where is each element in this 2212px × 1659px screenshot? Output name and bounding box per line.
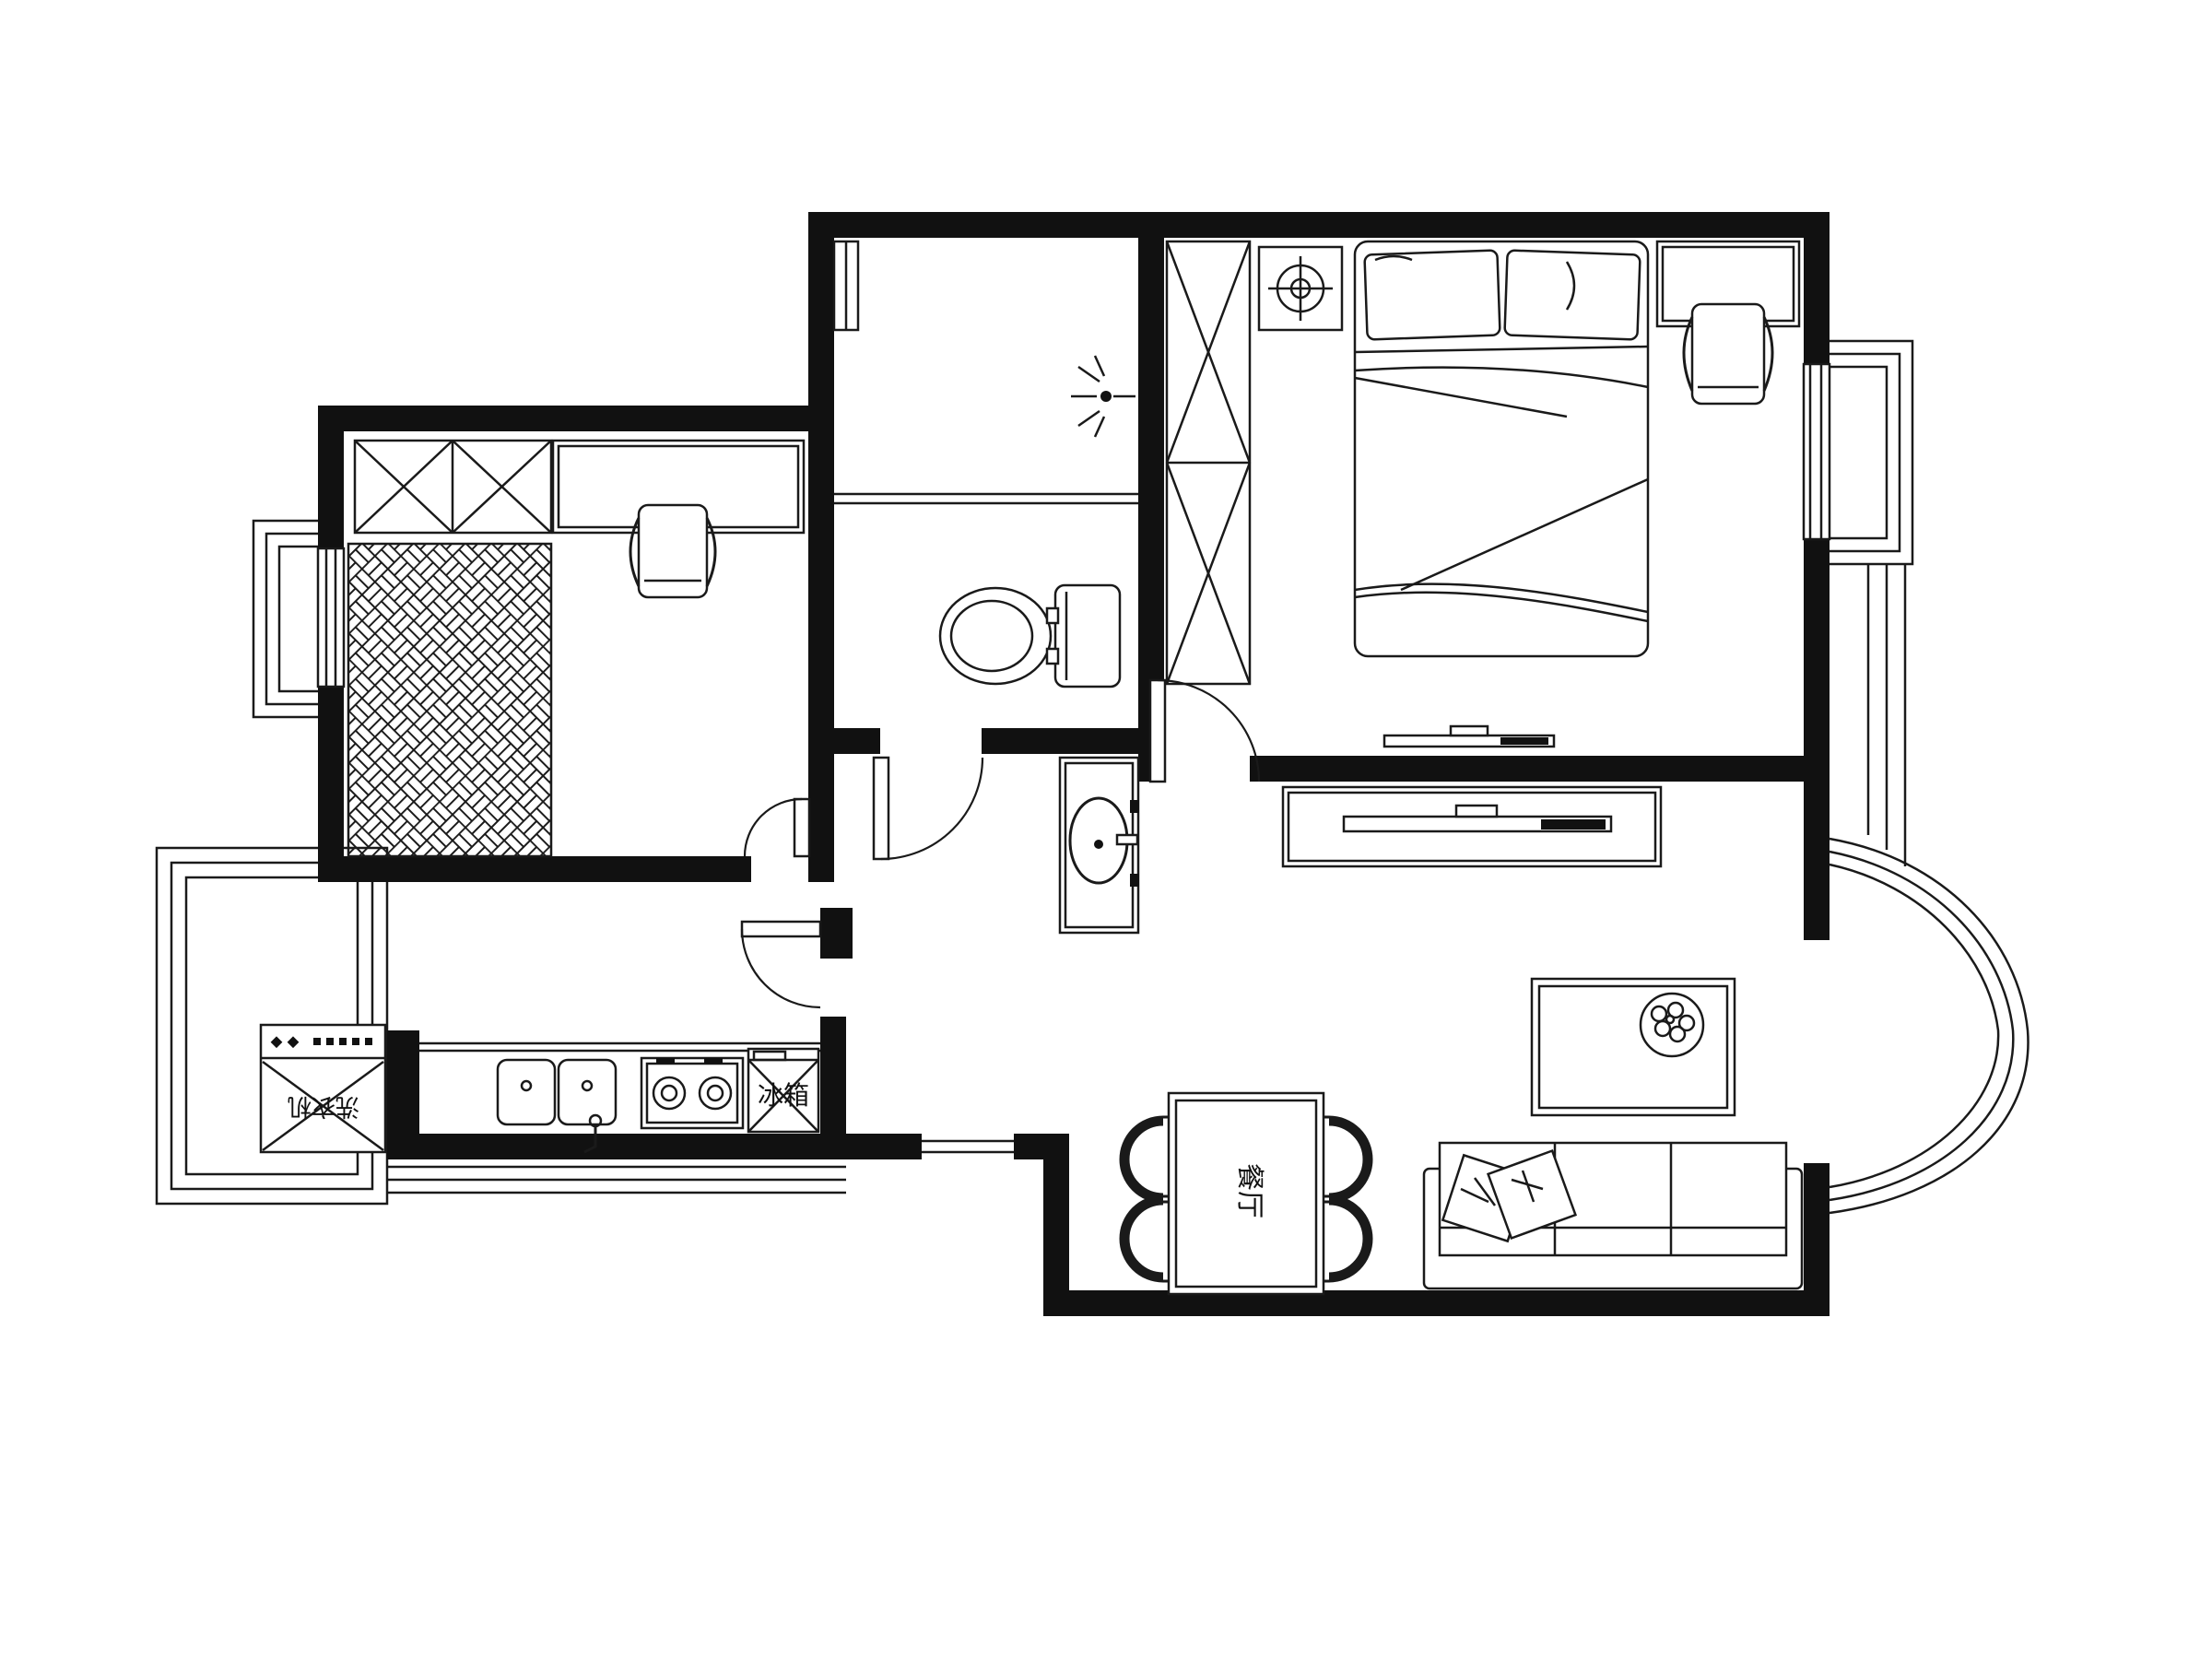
dining-room-label: 餐厅 bbox=[1234, 1163, 1265, 1218]
tatami-mat bbox=[348, 544, 551, 856]
floor-plan-canvas: 冰箱 洗衣机 bbox=[0, 0, 2212, 1659]
second-bedroom bbox=[348, 441, 809, 856]
ceiling-light-icon bbox=[1259, 247, 1342, 330]
bay-window-master-bedroom bbox=[1830, 341, 1912, 866]
dresser-stool-icon bbox=[1684, 304, 1772, 404]
wardrobe-icon bbox=[355, 441, 551, 533]
ceiling-lamp-icon bbox=[1071, 356, 1135, 437]
dining-area: 餐厅 bbox=[1124, 1093, 1368, 1294]
duct-window-bathroom bbox=[834, 241, 858, 330]
double-bed-icon bbox=[1355, 241, 1648, 656]
washing-machine-icon: 洗衣机 bbox=[261, 1025, 385, 1152]
kitchen: 冰箱 bbox=[419, 922, 820, 1152]
shower-divider bbox=[834, 494, 1138, 503]
bathroom-door bbox=[874, 758, 982, 859]
hall-closet-icon bbox=[1167, 241, 1250, 684]
facade-lines-under-kitchen bbox=[387, 1167, 846, 1193]
sofa-icon bbox=[1424, 1143, 1802, 1288]
refrigerator-icon: 冰箱 bbox=[748, 1049, 818, 1132]
dining-table-icon: 餐厅 bbox=[1169, 1093, 1324, 1294]
apartment-floor-plan: 冰箱 洗衣机 bbox=[0, 0, 2212, 1659]
living-room: 餐厅 bbox=[1124, 787, 1802, 1294]
master-bedroom-door bbox=[1150, 680, 1259, 782]
desk-chair-icon bbox=[630, 505, 715, 597]
kitchen-door bbox=[742, 922, 820, 1007]
refrigerator-label: 冰箱 bbox=[758, 1081, 809, 1110]
toilet-icon bbox=[940, 585, 1120, 687]
window-master-bedroom bbox=[1804, 364, 1830, 539]
basin-icon bbox=[1060, 758, 1139, 933]
window-second-bedroom bbox=[318, 548, 344, 687]
bay-window-second-bedroom bbox=[253, 521, 318, 717]
washing-machine-label: 洗衣机 bbox=[288, 1093, 359, 1121]
coffee-table-icon bbox=[1532, 979, 1735, 1115]
second-bedroom-door bbox=[745, 799, 809, 856]
curved-bay-window-living bbox=[1830, 839, 2028, 1213]
bedroom-tv-icon bbox=[1384, 726, 1554, 747]
stove-icon bbox=[641, 1058, 743, 1128]
entry-door-opening bbox=[922, 1141, 1014, 1152]
